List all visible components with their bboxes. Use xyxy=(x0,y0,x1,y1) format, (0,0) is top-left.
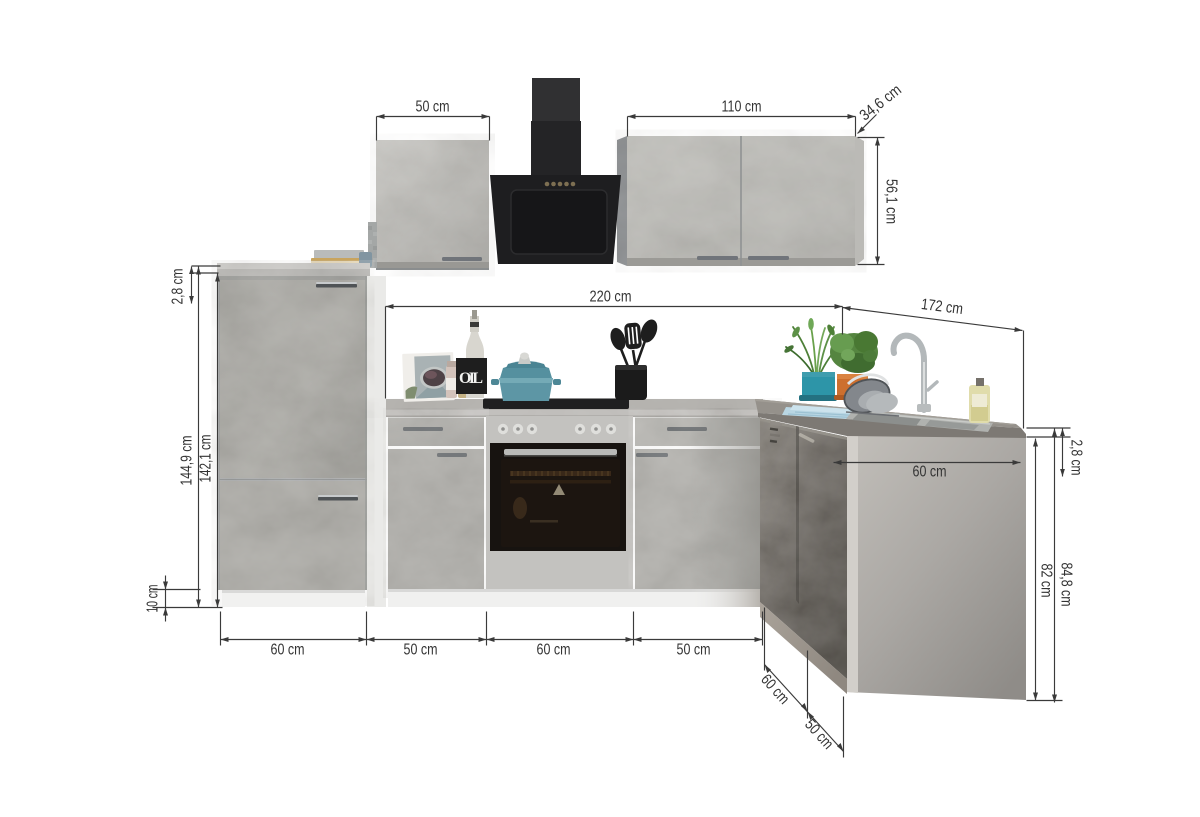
svg-text:60 cm: 60 cm xyxy=(271,642,305,659)
svg-text:84,8 cm: 84,8 cm xyxy=(1058,563,1075,607)
svg-text:56,1 cm: 56,1 cm xyxy=(883,179,900,224)
svg-text:50 cm: 50 cm xyxy=(677,642,711,659)
svg-text:50 cm: 50 cm xyxy=(416,99,450,116)
svg-text:2,8 cm: 2,8 cm xyxy=(1068,440,1085,476)
svg-text:10 cm: 10 cm xyxy=(145,585,162,613)
svg-text:110 cm: 110 cm xyxy=(722,99,762,116)
svg-text:50 cm: 50 cm xyxy=(404,642,438,659)
svg-text:2,8 cm: 2,8 cm xyxy=(170,269,187,305)
svg-text:220 cm: 220 cm xyxy=(590,289,632,306)
svg-text:OIL: OIL xyxy=(459,370,483,387)
svg-text:60 cm: 60 cm xyxy=(537,642,571,659)
svg-text:144,9 cm: 144,9 cm xyxy=(179,436,196,486)
svg-text:60 cm: 60 cm xyxy=(913,464,947,481)
svg-text:142,1 cm: 142,1 cm xyxy=(198,435,215,483)
svg-text:82 cm: 82 cm xyxy=(1038,564,1055,598)
